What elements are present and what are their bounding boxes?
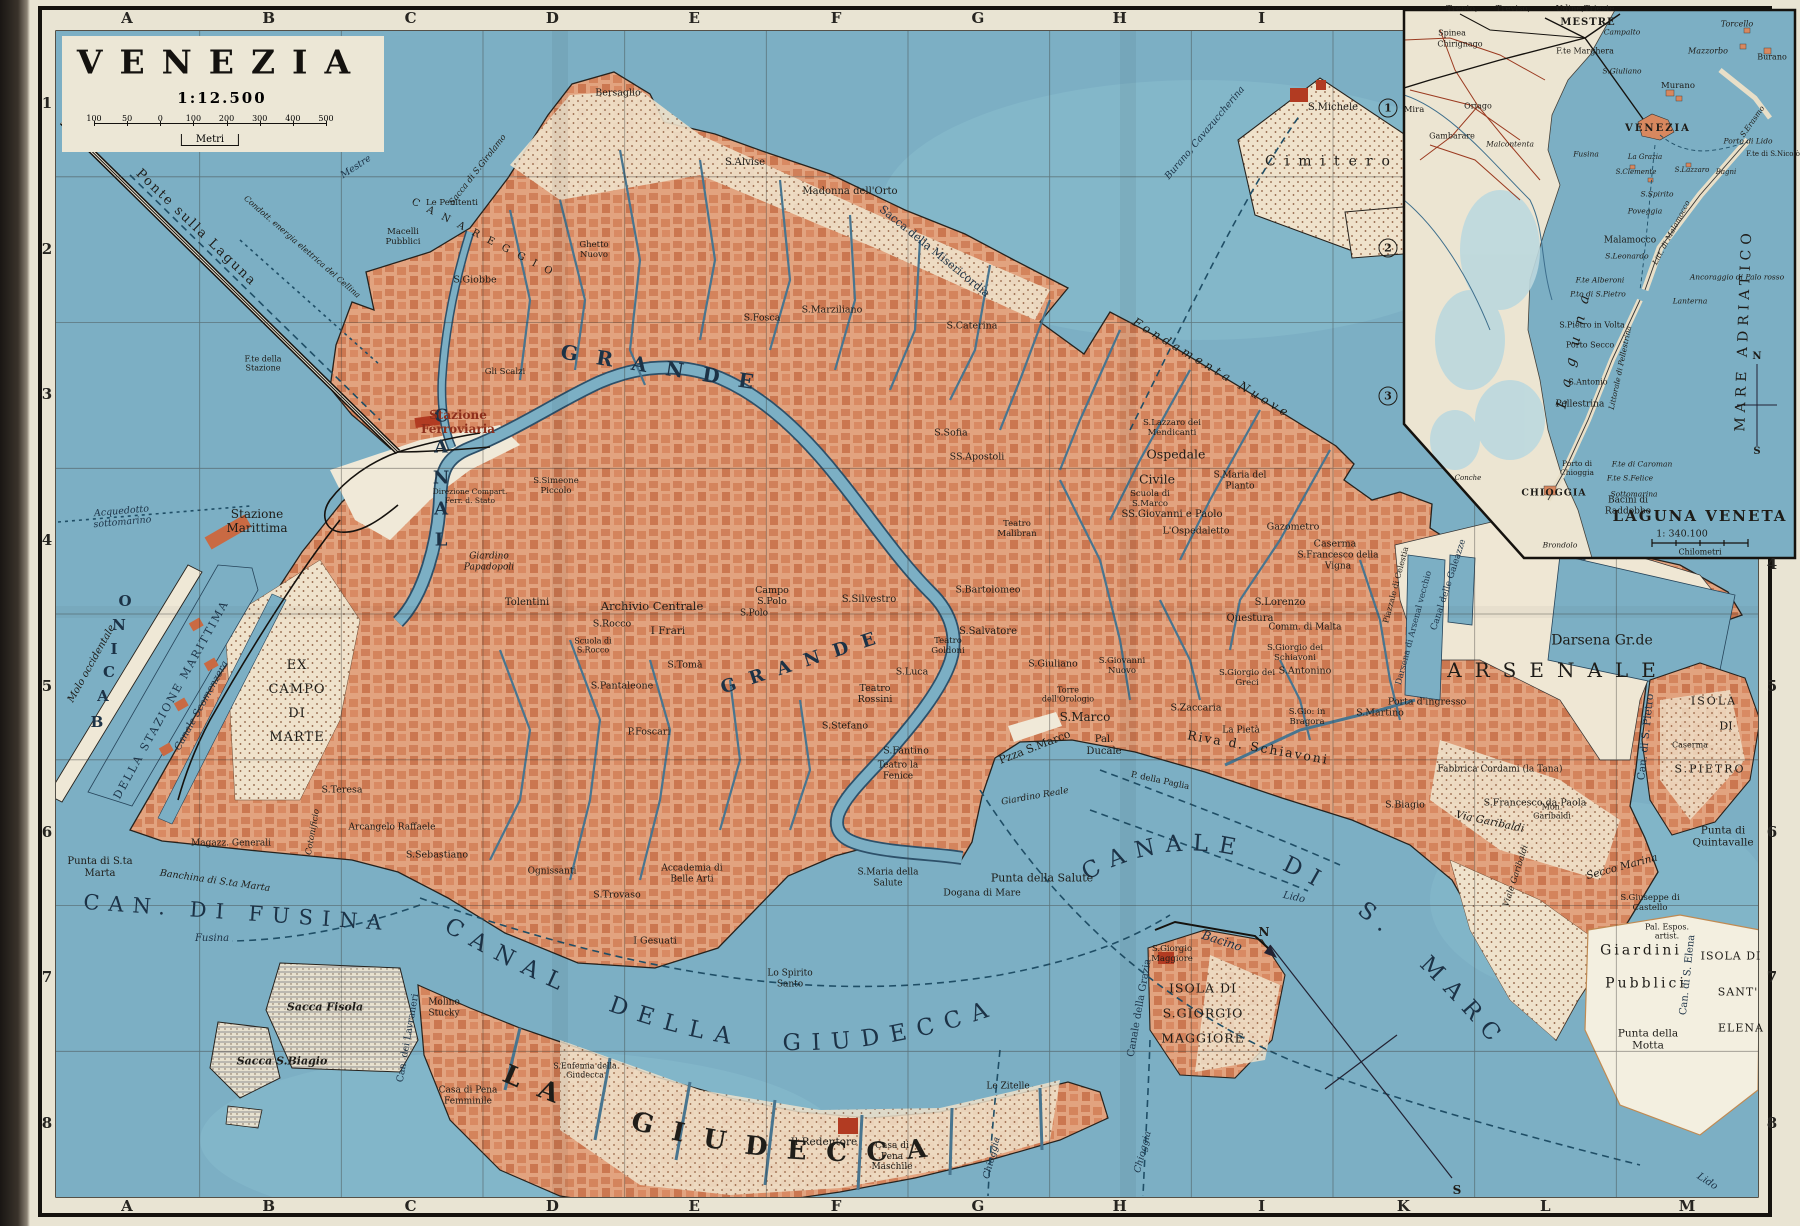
map-label: C xyxy=(103,664,115,682)
inset-label: Malamocco xyxy=(1604,236,1656,247)
inset-label: S.Clemente xyxy=(1616,168,1657,176)
map-label: S.Salvatore xyxy=(959,626,1017,638)
map-label: S.Maria della Salute xyxy=(852,867,924,888)
inset-label: Murano xyxy=(1661,81,1695,91)
grid-letter-top: A xyxy=(121,10,133,28)
map-label: S xyxy=(1453,1183,1462,1197)
map-label: Archivio Centrale xyxy=(601,600,704,614)
map-label: Secco Marina xyxy=(1585,852,1659,883)
grid-letter-top: E xyxy=(689,10,700,28)
map-label: CAN. DI FUSINA xyxy=(83,890,392,936)
grid-letter-bottom: K xyxy=(1397,1198,1410,1216)
inset-label: Udine,Trieste xyxy=(1556,4,1615,14)
grid-letter-bottom: E xyxy=(689,1198,700,1216)
map-label: S.Sofia xyxy=(934,427,967,438)
inset-label: S.Antonio xyxy=(1568,377,1607,386)
map-label: Teatro Rossini xyxy=(849,683,901,705)
map-label: Molo occidentale xyxy=(66,623,118,705)
inset-label: S.Spirito xyxy=(1640,191,1673,200)
grid-letter-bottom: B xyxy=(262,1198,275,1216)
map-label: Fusina xyxy=(195,933,229,945)
map-label: Civile xyxy=(1139,473,1175,488)
map-label: S.Francesco della Vigna xyxy=(1297,550,1379,571)
map-label: S.Lorenzo xyxy=(1255,597,1306,609)
map-label: S.Stefano xyxy=(822,720,868,731)
map-label: Canale della Grazia xyxy=(1126,958,1155,1058)
map-label: Teatro Goldoni xyxy=(922,636,974,656)
map-label: S.Tomà xyxy=(667,659,702,670)
inset-label: S.Leonardo xyxy=(1605,253,1648,262)
map-label: C A N A R E G G I O xyxy=(409,197,556,280)
map-label: L'Ospedaletto xyxy=(1162,525,1229,536)
grid-letter-bottom: D xyxy=(546,1198,559,1216)
inset-label: Mazzorbo xyxy=(1688,46,1728,55)
grid-number-left: 2 xyxy=(42,241,52,259)
map-label: Accademia di Belle Arti xyxy=(651,863,733,884)
map-label: Teatro Malibran xyxy=(989,519,1045,539)
map-label: Ghetto Nuovo xyxy=(571,240,617,260)
map-label: Scuola di S.Rocco xyxy=(565,637,621,656)
inset-label: Chilometri xyxy=(1678,547,1721,556)
inset-label: Spinea xyxy=(1438,28,1466,37)
map-label: Caserma xyxy=(1314,538,1357,549)
inset-label: Porto Secco xyxy=(1566,340,1614,349)
map-label: Ognissanti xyxy=(528,867,577,878)
inset-label: F.te di S.Nicolò xyxy=(1746,150,1800,158)
map-label: Sacca della Misericordia xyxy=(876,204,991,301)
grid-number-left: 8 xyxy=(42,1115,52,1133)
map-label: G R A N D E xyxy=(559,341,761,396)
inset-label: MARE ADRIATICO xyxy=(1732,228,1756,432)
map-label: Teatro la Fenice xyxy=(870,760,926,781)
map-label: Sacca Fisola xyxy=(287,1002,363,1015)
map-label: Pzza S.Marco xyxy=(997,728,1072,767)
map-label: S.Rocco xyxy=(593,618,631,629)
map-label: S.Alvise xyxy=(725,157,765,169)
map-label: Acquedotto sottomarino xyxy=(75,502,169,532)
map-label: S.Marziliano xyxy=(802,304,863,315)
map-label: Burano, Cavazuccherina xyxy=(1163,84,1247,182)
map-label: G R A N D E xyxy=(718,627,882,698)
map-label: Viale Garibaldi xyxy=(1501,844,1530,908)
map-label: Torre dell'Orologio xyxy=(1037,686,1099,705)
inset-label: Poveggia xyxy=(1628,208,1662,217)
inset-label: Oriago xyxy=(1464,101,1492,110)
inset-label: P.to di S.Pietro xyxy=(1570,291,1626,300)
map-label: Comm. di Malta xyxy=(1268,623,1341,634)
inset-label: Sottomarina xyxy=(1610,491,1657,500)
map-label: S.Lazzaro dei Mendicanti xyxy=(1134,418,1210,438)
map-label: Bacini di Raddobbo xyxy=(1597,495,1659,516)
map-label: Can. dei Lavraneri xyxy=(395,993,422,1083)
map-label: Le Zitelle xyxy=(986,1082,1029,1093)
inset-label: Chirignago xyxy=(1437,39,1482,48)
grid-letter-bottom: G xyxy=(972,1198,985,1216)
map-label: Darsena di Arsenal vecchio xyxy=(1394,570,1434,686)
map-label: S.Antonino xyxy=(1279,665,1332,676)
map-page: CANAL DELLA GIUDECCA CANALE DI S. MARCO … xyxy=(0,0,1800,1226)
grid-number-left: 1 xyxy=(42,95,52,113)
map-label: S.Martino xyxy=(1356,707,1404,718)
map-label: Lo Spirito Santo xyxy=(759,968,821,989)
grid-letter-bottom: L xyxy=(1540,1198,1551,1216)
map-label: SS.Giovanni e Paolo xyxy=(1121,509,1222,521)
grid-letter-bottom: C xyxy=(405,1198,417,1216)
map-label: Le Penitenti xyxy=(426,198,478,208)
map-label: Caserma xyxy=(1672,740,1708,749)
map-label: Pal. Ducale xyxy=(1081,734,1127,758)
map-label: Scuola di S.Marco xyxy=(1122,489,1178,509)
map-label: Sacca di S.Girolamo xyxy=(447,133,508,208)
map-label: S.Caterina xyxy=(947,320,998,331)
grid-letter-bottom: A xyxy=(121,1198,133,1216)
map-label: S.Eufemia della Giudecca xyxy=(553,1062,617,1081)
map-label: Mon. Garibaldi xyxy=(1526,803,1578,822)
map-label: I Gesuati xyxy=(633,935,677,946)
map-label: S.Luca xyxy=(896,666,929,677)
inset-label: Ancoraggio di Palo rosso xyxy=(1690,274,1784,283)
map-label: CANAL xyxy=(430,406,451,561)
grid-letter-top: F xyxy=(831,10,842,28)
map-label: EX CAMPO DI MARTE xyxy=(261,654,333,750)
label-layer: G R A N D ECANALG R A N D ECAN. DI FUSIN… xyxy=(0,0,1800,1226)
map-label: S.Fantino xyxy=(883,745,929,756)
map-label: ARSENALE xyxy=(1447,659,1669,683)
map-label: S.Giorgio dei Greci xyxy=(1215,668,1279,688)
map-label: A xyxy=(97,688,109,706)
map-label: Can. di S. Pietro xyxy=(1635,693,1656,781)
map-label: Piazzale di Celestia xyxy=(1381,546,1411,625)
map-label: Stazione Marittima xyxy=(216,507,298,535)
map-label: S.Giovanni Nuovo xyxy=(1091,656,1153,676)
map-label: S.Zaccaria xyxy=(1170,702,1221,713)
map-label: S.Giuseppe di Castello xyxy=(1615,893,1685,913)
grid-number-left: 5 xyxy=(42,678,52,696)
map-label: S.Giobbe xyxy=(453,274,496,285)
inset-label: S.Giuliano xyxy=(1602,68,1641,77)
map-label: ELENA xyxy=(1718,1023,1764,1036)
map-label: Magazz. Generali xyxy=(191,839,271,850)
grid-letter-bottom: F xyxy=(831,1198,842,1216)
map-label: Banchina di S.ta Marta xyxy=(159,868,271,895)
map-label: Fondamenta Nuove xyxy=(1130,315,1294,421)
map-label: Macelli Pubblici xyxy=(375,227,431,247)
grid-number-right: 4 xyxy=(1767,556,1777,574)
inset-label: LAGUNA VENETA xyxy=(1613,508,1788,526)
page-edge xyxy=(0,0,30,1226)
map-label: Mestre xyxy=(339,153,374,181)
inset-label: S.Lazzaro xyxy=(1675,166,1710,174)
map-label: Giardino Reale xyxy=(1001,786,1070,808)
map-label: Pal. Espos. artist. xyxy=(1639,923,1695,942)
map-label: F.te della Stazione xyxy=(232,355,294,374)
map-label: S.Francesco da Paola xyxy=(1484,797,1587,808)
map-label: Can. di S. Elena xyxy=(1678,934,1698,1016)
map-label: B xyxy=(91,714,104,732)
inset-label: Pellestrina xyxy=(1556,400,1605,411)
grid-number-left: 4 xyxy=(42,532,52,550)
map-label: S.Marco xyxy=(1060,710,1111,724)
inset-label: Gambarare xyxy=(1429,131,1475,140)
map-label: Stazione Ferroviaria xyxy=(412,408,504,436)
inset-label: S xyxy=(1753,446,1760,458)
map-label: Porta d'ingresso xyxy=(1388,696,1466,707)
map-label: Ospedale xyxy=(1147,448,1206,463)
map-label: S.Simeone Piccolo xyxy=(524,476,588,496)
inset-label: Bagni xyxy=(1716,168,1737,176)
inset-label: F.te Marghera xyxy=(1556,46,1614,55)
inset-label: Treviso, xyxy=(1496,4,1530,14)
inset-label: Conche xyxy=(1455,474,1482,482)
inset-label: Litt. di Malamocco xyxy=(1651,199,1692,266)
inset-label: S.Pietro in Volta xyxy=(1559,320,1624,329)
map-label: I Frari xyxy=(651,625,685,637)
map-label: S.Michele xyxy=(1308,102,1358,114)
inset-label: Fusina xyxy=(1573,151,1599,160)
inset-label: Brondolo xyxy=(1543,542,1578,551)
grid-letter-top: G xyxy=(972,10,985,28)
inset-label: L a g u n a xyxy=(1554,290,1595,410)
inset-label: CHIOGGIA xyxy=(1521,487,1586,498)
map-label: DI xyxy=(1719,721,1732,734)
map-label: N xyxy=(112,617,126,635)
map-label: Giardini xyxy=(1600,943,1682,960)
map-label: Casa di Pena Femminile xyxy=(437,1085,499,1106)
map-label: S.Bartolomeo xyxy=(955,584,1020,595)
map-label: Cotonificio xyxy=(304,808,322,856)
map-label: S.PIETRO xyxy=(1674,764,1745,777)
map-label: Punta di Quintavalle xyxy=(1682,825,1764,850)
map-label: Canale Scomenzera xyxy=(172,659,231,753)
map-label: O xyxy=(118,593,131,611)
inset-label: S.Erasmo xyxy=(1739,105,1767,140)
grid-number-right: 8 xyxy=(1767,1115,1777,1133)
grid-letter-top: C xyxy=(405,10,417,28)
map-label: Madonna dell'Orto xyxy=(802,186,897,198)
map-label: ISOLA DI S.GIORGIO MAGGIORE xyxy=(1157,976,1249,1051)
map-label: Bacino xyxy=(1200,928,1244,954)
grid-number-circled: 3 xyxy=(1379,387,1398,406)
inset-label: Malcontenta xyxy=(1486,141,1534,150)
map-label: DELLA STAZIONE MARITTIMA xyxy=(112,598,233,802)
map-label: La Pietà xyxy=(1222,726,1259,737)
inset-label: Mira xyxy=(1404,105,1425,115)
map-label: Direzione Compart. Ferr. d. Stato xyxy=(429,488,511,506)
grid-number-right: 6 xyxy=(1767,824,1777,842)
grid-number-circled: 2 xyxy=(1379,239,1398,258)
map-label: SS.Apostoli xyxy=(950,451,1005,462)
map-label: Cimitero xyxy=(1265,154,1399,171)
map-label: ISOLA xyxy=(1691,696,1737,709)
inset-label: F.te Alberoni xyxy=(1576,277,1625,286)
map-label: S.Fosca xyxy=(744,312,781,323)
map-label: N xyxy=(1259,925,1270,939)
map-label: P.Foscari xyxy=(628,726,671,737)
map-label: Il Redentore xyxy=(791,1136,857,1148)
grid-number-circled: 1 xyxy=(1379,99,1398,118)
map-label: Sacca S.Biagio xyxy=(237,1056,328,1069)
map-label: Chioggia xyxy=(1132,1130,1154,1174)
grid-number-right: 7 xyxy=(1767,970,1777,988)
map-label: ISOLA DI xyxy=(1701,951,1762,964)
map-label: S.Sebastiano xyxy=(406,849,468,860)
map-label: Via Garibaldi xyxy=(1455,809,1526,836)
grid-letter-bottom: M xyxy=(1679,1198,1696,1216)
inset-label: MESTRE xyxy=(1560,17,1615,29)
inset-label: F.te S.Felice xyxy=(1607,475,1653,484)
grid-letter-bottom: H xyxy=(1113,1198,1127,1216)
map-label: Pubblici xyxy=(1605,976,1687,993)
map-label: Campo S.Polo xyxy=(746,585,798,607)
grid-letter-top: I xyxy=(1258,10,1265,28)
map-label: Lido xyxy=(1282,890,1306,906)
inset-label: Torcello xyxy=(1721,19,1754,28)
map-label: S.Giorgio dei Schiavoni xyxy=(1259,643,1331,663)
inset-label: Lanterna xyxy=(1673,298,1708,307)
map-label: S.Giorgio Maggiore xyxy=(1144,944,1200,964)
grid-number-left: 3 xyxy=(42,387,52,405)
grid-letter-top: H xyxy=(1113,10,1127,28)
map-label: Fabbrica Cordami (la Tana) xyxy=(1438,765,1563,776)
map-label: Canal delle Galeazze xyxy=(1429,538,1468,632)
map-label: Riva d. Schiavoni xyxy=(1186,728,1330,767)
inset-label: VENEZIA xyxy=(1625,123,1691,135)
grid-letter-top: D xyxy=(546,10,559,28)
inset-label: Porto di Lido xyxy=(1723,138,1772,147)
map-label: Questura xyxy=(1227,613,1274,625)
map-label: S.Pantaleone xyxy=(591,680,654,691)
inset-label: Littorale di Pellestrina xyxy=(1608,325,1634,410)
inset-label: Burano xyxy=(1757,52,1787,61)
grid-letter-bottom: I xyxy=(1258,1198,1265,1216)
map-label: Condott. energia elettrica del Cellina xyxy=(242,194,362,300)
map-label: S.Giuliano xyxy=(1028,658,1078,669)
map-label: Ponte sulla Laguna xyxy=(132,166,259,290)
map-label: Punta della Motta xyxy=(1612,1028,1684,1053)
map-label: Casa di Pena Maschile xyxy=(864,1141,920,1173)
map-label: S.Biagio xyxy=(1385,799,1425,810)
inset-label: F.te di Caroman xyxy=(1612,461,1673,470)
map-label: Punta della Salute xyxy=(991,873,1093,886)
map-label: Dogana di Mare xyxy=(943,887,1021,898)
map-label: Darsena Gr.de xyxy=(1551,633,1653,650)
inset-label: N xyxy=(1752,351,1761,363)
map-label: SANT' xyxy=(1718,987,1758,1000)
map-label: S.Silvestro xyxy=(842,594,896,606)
grid-number-left: 7 xyxy=(42,970,52,988)
map-label: Bersaglio xyxy=(595,87,641,98)
map-label: S.Polo xyxy=(740,609,768,620)
map-label: Punta di S.ta Marta xyxy=(64,856,136,880)
map-label: S.Gio: in Bragora xyxy=(1279,707,1335,727)
map-label: S.Trovaso xyxy=(593,889,640,900)
map-label: Molino Stucky xyxy=(421,997,467,1018)
map-label: P. della Paglia xyxy=(1130,770,1190,792)
map-label: Gazometro xyxy=(1267,521,1320,532)
map-label: Chioggia xyxy=(981,1136,1003,1180)
grid-letter-top: B xyxy=(262,10,275,28)
inset-label: Porto di Chioggia xyxy=(1549,460,1605,478)
inset-label: La Grazia xyxy=(1628,153,1662,161)
inset-label: Campalto xyxy=(1604,29,1641,38)
map-label: S.Maria del Pianto xyxy=(1209,470,1271,491)
grid-number-right: 5 xyxy=(1767,678,1777,696)
map-label: Tolentini xyxy=(505,597,549,609)
inset-label: 1: 340.100 xyxy=(1656,528,1708,539)
map-label: Arcangelo Raffaele xyxy=(349,823,436,834)
map-label: S.Teresa xyxy=(321,784,362,795)
grid-number-left: 6 xyxy=(42,824,52,842)
map-label: Lido xyxy=(1694,1171,1719,1193)
map-label: Giardino Papadopoli xyxy=(453,551,525,572)
map-label: Gli Scalzi xyxy=(485,367,526,377)
inset-label: Trento, xyxy=(1446,4,1477,14)
map-label: I xyxy=(110,641,117,659)
